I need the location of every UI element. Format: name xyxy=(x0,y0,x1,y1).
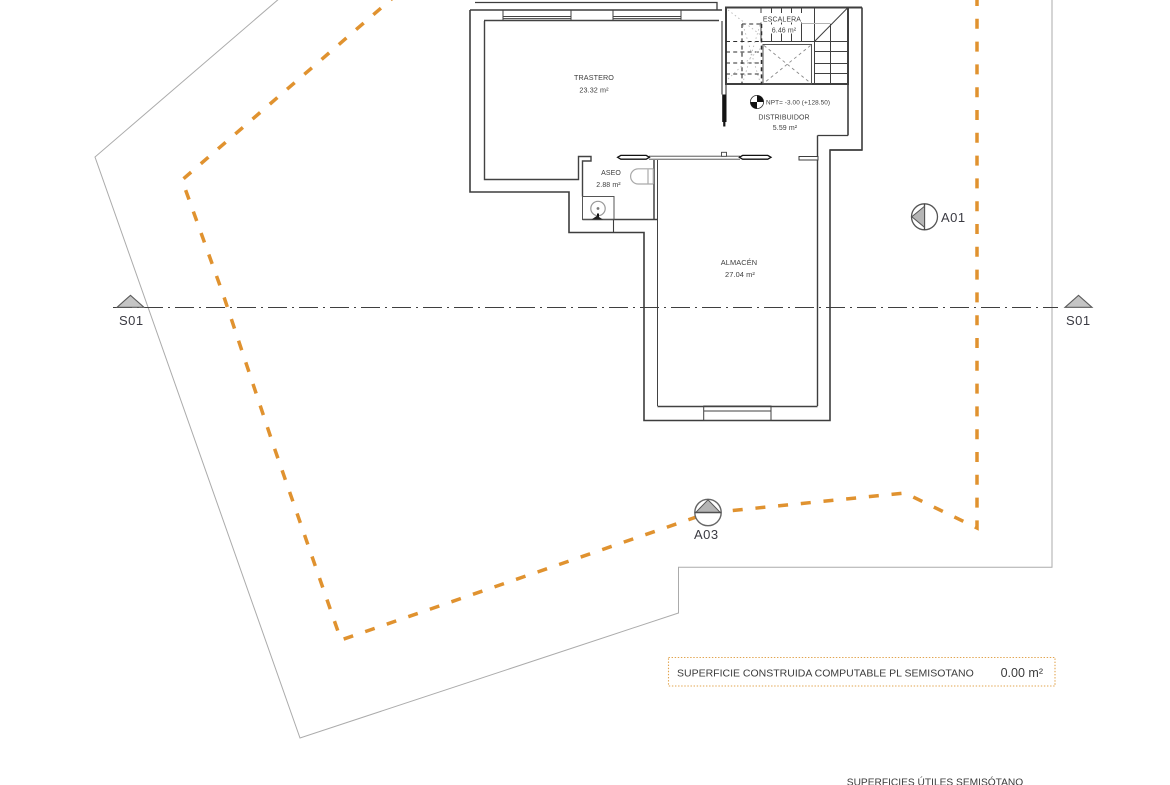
svg-text:27.04 m²: 27.04 m² xyxy=(725,270,755,279)
svg-text:A01: A01 xyxy=(941,210,966,225)
svg-text:6.46 m²: 6.46 m² xyxy=(772,28,797,35)
svg-text:0.00 m²: 0.00 m² xyxy=(1001,666,1043,680)
svg-text:ALMACÉN: ALMACÉN xyxy=(721,258,757,267)
svg-text:NPT= -3.00 (+128.50): NPT= -3.00 (+128.50) xyxy=(766,100,830,107)
svg-text:SUPERFICIE CONSTRUIDA COMPUTAB: SUPERFICIE CONSTRUIDA COMPUTABLE PL SEMI… xyxy=(677,668,974,680)
svg-text:S01: S01 xyxy=(1066,313,1091,328)
svg-text:5.59 m²: 5.59 m² xyxy=(773,125,798,132)
svg-text:23.32 m²: 23.32 m² xyxy=(579,86,609,95)
svg-text:ESCALERA: ESCALERA xyxy=(763,17,801,24)
svg-text:A03: A03 xyxy=(694,527,719,542)
svg-text:S01: S01 xyxy=(119,313,144,328)
svg-text:DISTRIBUIDOR: DISTRIBUIDOR xyxy=(758,115,809,122)
svg-text:SUPERFICIES ÚTILES SEMISÓTANO: SUPERFICIES ÚTILES SEMISÓTANO xyxy=(847,776,1024,785)
svg-text:2.88 m²: 2.88 m² xyxy=(596,182,621,189)
svg-text:ASEO: ASEO xyxy=(601,170,621,177)
svg-text:TRASTERO: TRASTERO xyxy=(574,73,614,82)
